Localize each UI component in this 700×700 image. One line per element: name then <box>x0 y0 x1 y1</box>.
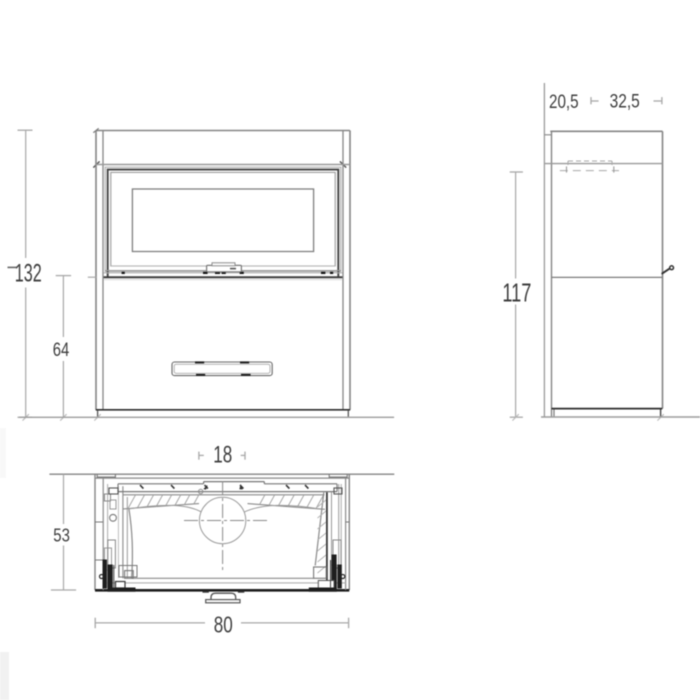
svg-text:64: 64 <box>53 340 70 361</box>
svg-text:32,5: 32,5 <box>610 92 640 113</box>
svg-text:132: 132 <box>15 260 42 288</box>
svg-text:117: 117 <box>502 277 531 307</box>
svg-text:18: 18 <box>213 441 232 468</box>
svg-text:53: 53 <box>53 524 70 545</box>
svg-text:20,5: 20,5 <box>549 92 579 113</box>
svg-text:80: 80 <box>214 612 233 638</box>
